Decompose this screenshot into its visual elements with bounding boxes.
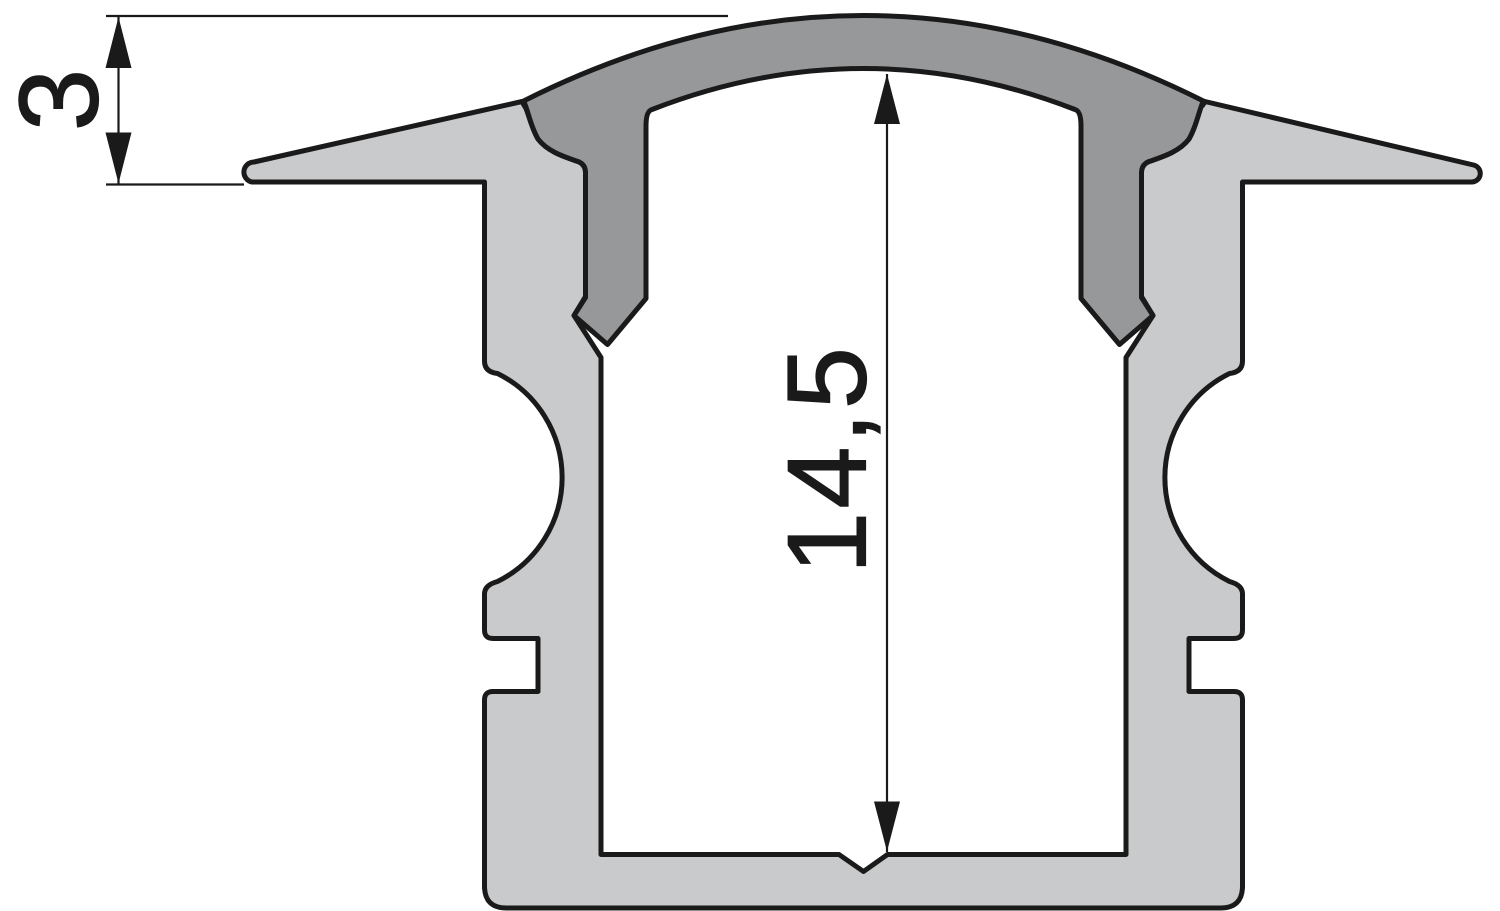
- svg-text:14,5: 14,5: [765, 344, 890, 574]
- svg-text:3: 3: [0, 69, 122, 131]
